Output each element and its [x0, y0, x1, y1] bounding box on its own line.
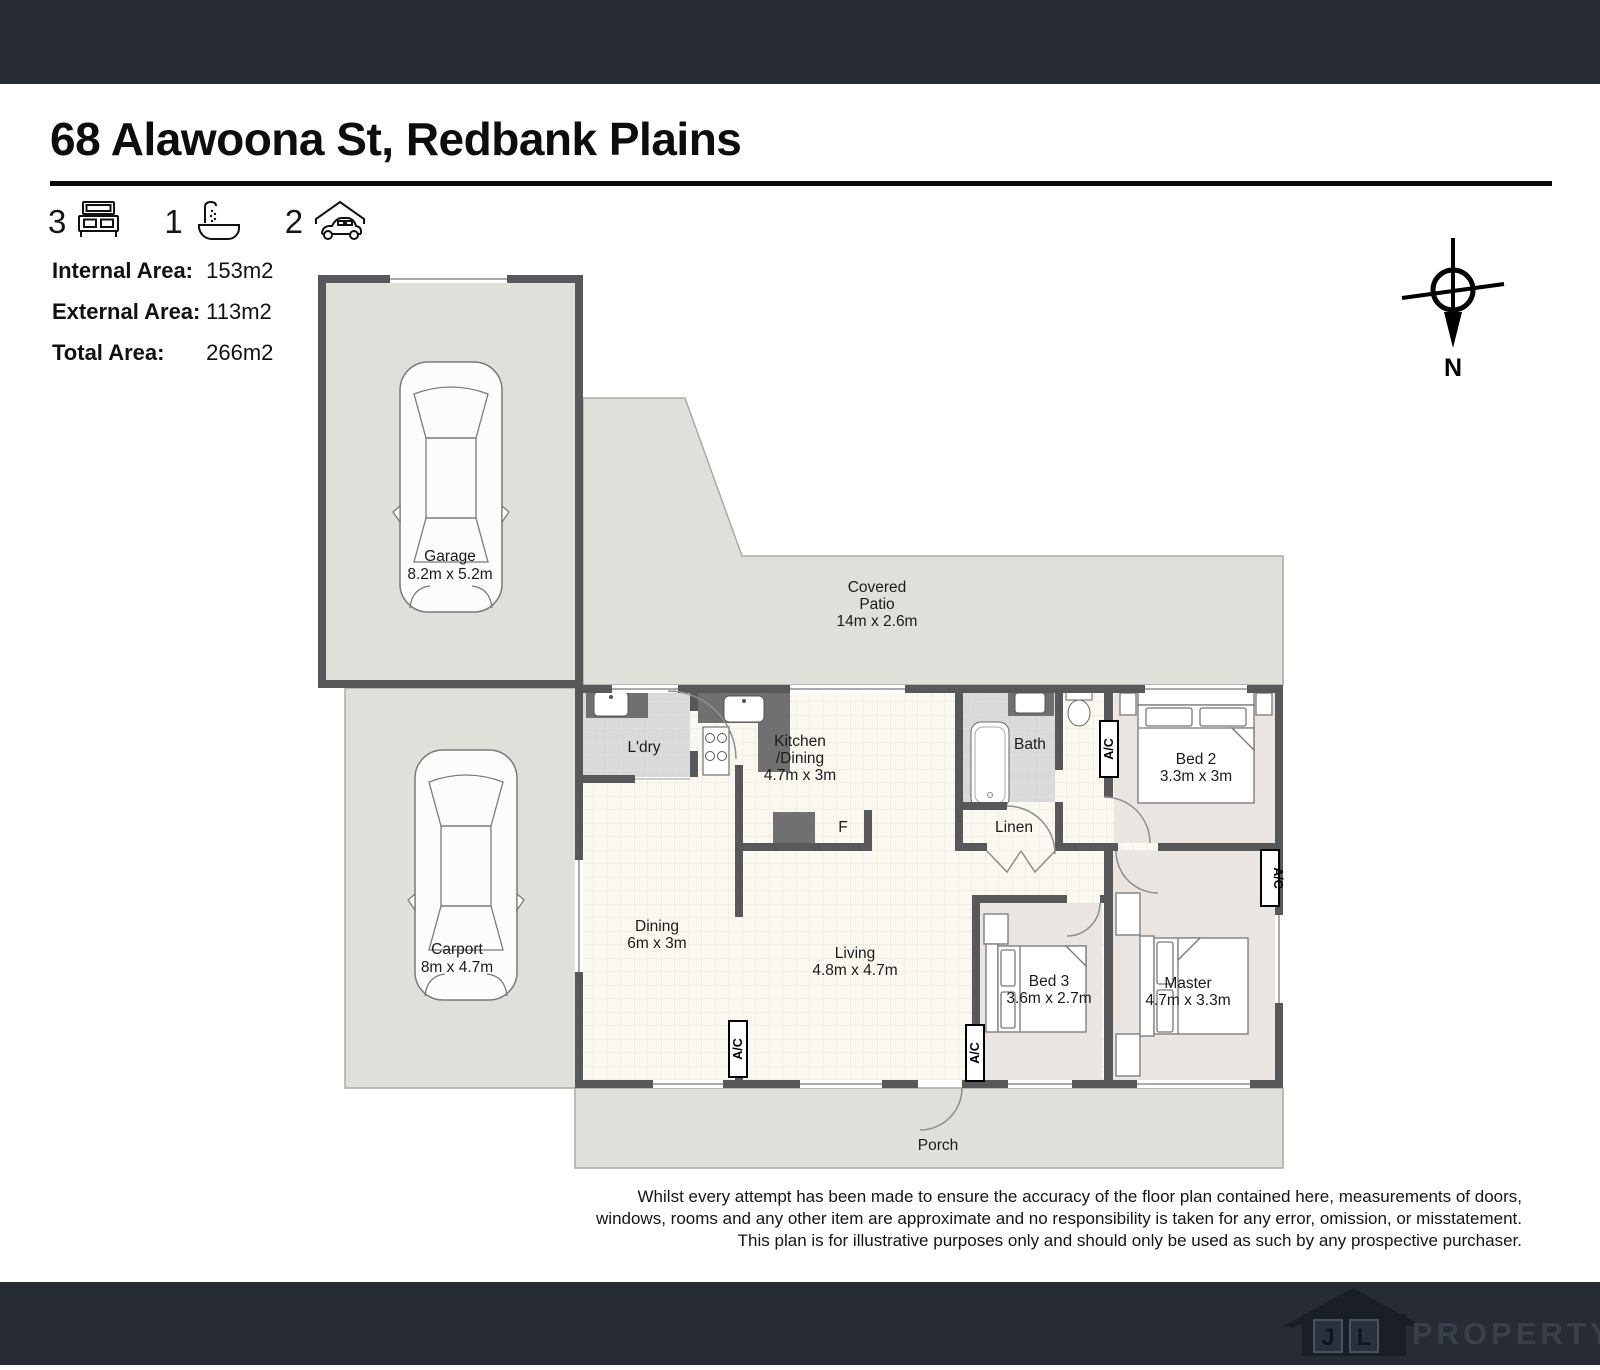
bath-label: Bath	[1014, 736, 1046, 753]
laundry-label: L'dry	[627, 739, 660, 756]
living-label: Living	[835, 945, 876, 962]
dining-label: Dining	[635, 918, 679, 935]
garage-label: Garage	[424, 548, 476, 565]
kitchen-label-2: /Dining	[776, 750, 824, 767]
floor-plan: A/C A/C A/C A/C Garage 8.2m x 5.2m Carpo…	[0, 0, 1600, 1365]
logo-letter-l: L	[1357, 1324, 1372, 1351]
logo-letter-j: J	[1321, 1324, 1334, 1351]
ac-label-3: A/C	[731, 1038, 745, 1060]
bed2-label: Bed 2	[1176, 751, 1217, 768]
linen-label: Linen	[995, 819, 1033, 836]
carport-label: Carport	[431, 941, 483, 958]
bed3-dims: 3.6m x 2.7m	[1006, 990, 1091, 1007]
disclaimer-line-3: This plan is for illustrative purposes o…	[562, 1230, 1522, 1252]
fridge-label: F	[838, 819, 847, 836]
disclaimer-line-1: Whilst every attempt has been made to en…	[562, 1186, 1522, 1208]
porch-area	[575, 1088, 1283, 1168]
patio-label-1: Covered	[848, 579, 907, 596]
garage-dims: 8.2m x 5.2m	[407, 566, 492, 583]
dining-dims: 6m x 3m	[627, 935, 686, 952]
disclaimer-line-2: windows, rooms and any other item are ap…	[562, 1208, 1522, 1230]
kitchen-label-1: Kitchen	[774, 733, 826, 750]
ac-label-4: A/C	[968, 1042, 982, 1064]
covered-patio-area	[583, 398, 1283, 685]
porch-label: Porch	[918, 1137, 959, 1154]
carport-dims: 8m x 4.7m	[421, 959, 493, 976]
bed2-dims: 3.3m x 3m	[1160, 768, 1232, 785]
brand-logo: J L PROPERTY	[1270, 1282, 1600, 1370]
master-label: Master	[1164, 975, 1211, 992]
ac-label-2: A/C	[1271, 867, 1285, 889]
bed3-label: Bed 3	[1029, 973, 1070, 990]
master-dims: 4.7m x 3.3m	[1145, 992, 1230, 1009]
disclaimer: Whilst every attempt has been made to en…	[562, 1186, 1522, 1252]
logo-wordmark: PROPERTY	[1412, 1316, 1600, 1351]
kitchen-dims: 4.7m x 3m	[764, 767, 836, 784]
patio-label-2: Patio	[859, 596, 894, 613]
living-dims: 4.8m x 4.7m	[812, 962, 897, 979]
ac-label-1: A/C	[1102, 738, 1116, 760]
house-logo-icon: J L	[1282, 1288, 1424, 1356]
patio-dims: 14m x 2.6m	[837, 613, 918, 630]
